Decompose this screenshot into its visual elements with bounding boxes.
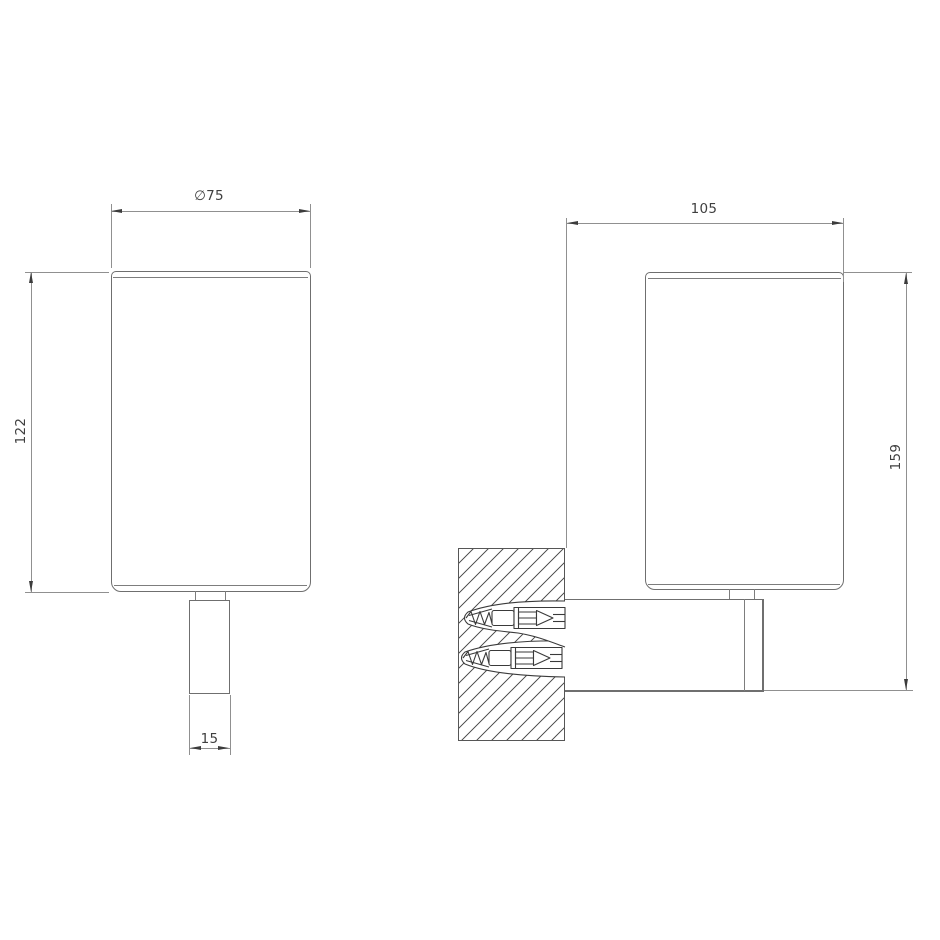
arrow-up-icon: [904, 273, 908, 284]
arrow-left-icon: [111, 209, 122, 213]
arm-end-line: [762, 599, 764, 691]
arm-top-line: [565, 599, 763, 601]
cup-side-outline: [645, 272, 844, 590]
stem-front-outline: [189, 600, 230, 694]
arrow-up-icon: [29, 272, 33, 283]
dimension-line: [566, 223, 843, 224]
arrow-down-icon: [904, 679, 908, 690]
arm-inner-edge-line: [744, 599, 745, 691]
arrow-right-icon: [832, 221, 843, 225]
cup-neck-right-line: [754, 589, 755, 599]
extension-line: [111, 204, 112, 268]
arrow-down-icon: [29, 581, 33, 592]
dimension-line: [31, 272, 32, 592]
extension-line: [844, 272, 912, 273]
technical-drawing-canvas: ∅75 122 15: [0, 0, 940, 940]
overall-height-label: 159: [889, 439, 903, 475]
extension-line: [230, 695, 231, 755]
cup-neck-left-line: [729, 589, 730, 599]
extension-line: [566, 218, 567, 548]
extension-line: [764, 690, 913, 691]
dimension-line: [906, 273, 907, 690]
cup-front-rim-top-line: [113, 277, 308, 278]
cup-front-outline: [111, 271, 311, 592]
dimension-line: [111, 211, 310, 212]
arrow-left-icon: [190, 746, 201, 750]
fasteners-group: [440, 540, 580, 750]
stem-width-label: 15: [189, 732, 230, 746]
extension-line: [25, 272, 109, 273]
arm-bottom-line: [565, 690, 764, 692]
extension-line: [25, 592, 109, 593]
body-height-label: 122: [14, 413, 28, 449]
extension-line: [310, 204, 311, 268]
arrow-right-icon: [218, 746, 229, 750]
diameter-label: ∅75: [179, 189, 239, 203]
arrow-left-icon: [567, 221, 578, 225]
arrow-right-icon: [299, 209, 310, 213]
cup-front-rim-bottom-line: [114, 585, 307, 586]
cup-side-rim-top-line: [648, 278, 841, 279]
wall-depth-label: 105: [674, 202, 734, 216]
cup-side-rim-bottom-line: [648, 584, 840, 585]
